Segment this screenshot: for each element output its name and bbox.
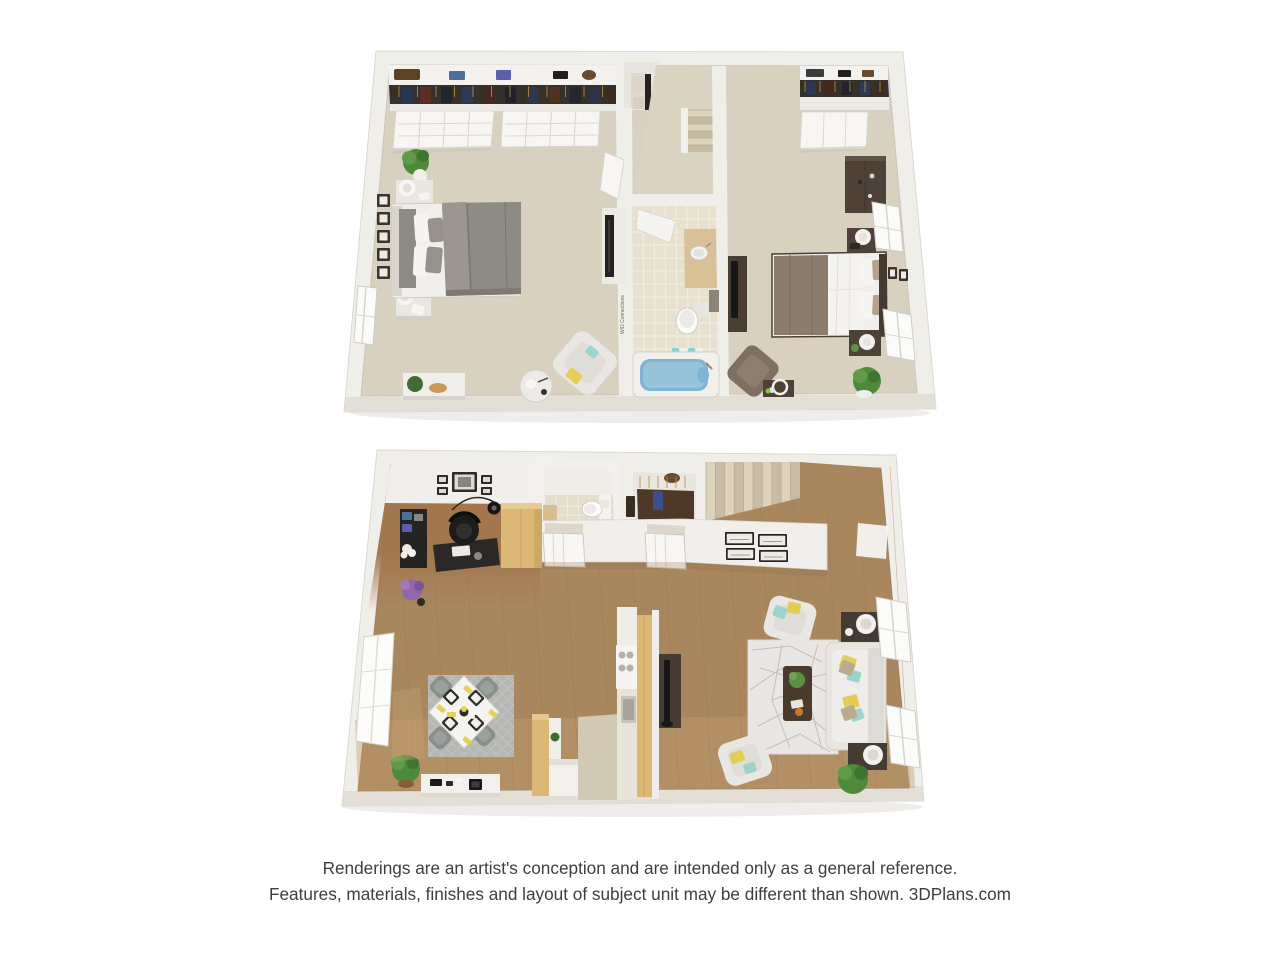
svg-text:Features, materials, finishes: Features, materials, finishes and layout… (269, 884, 1011, 904)
svg-text:Renderings are an artist's con: Renderings are an artist's conception an… (323, 858, 958, 878)
svg-text:W/D Connections: W/D Connections (620, 295, 626, 334)
